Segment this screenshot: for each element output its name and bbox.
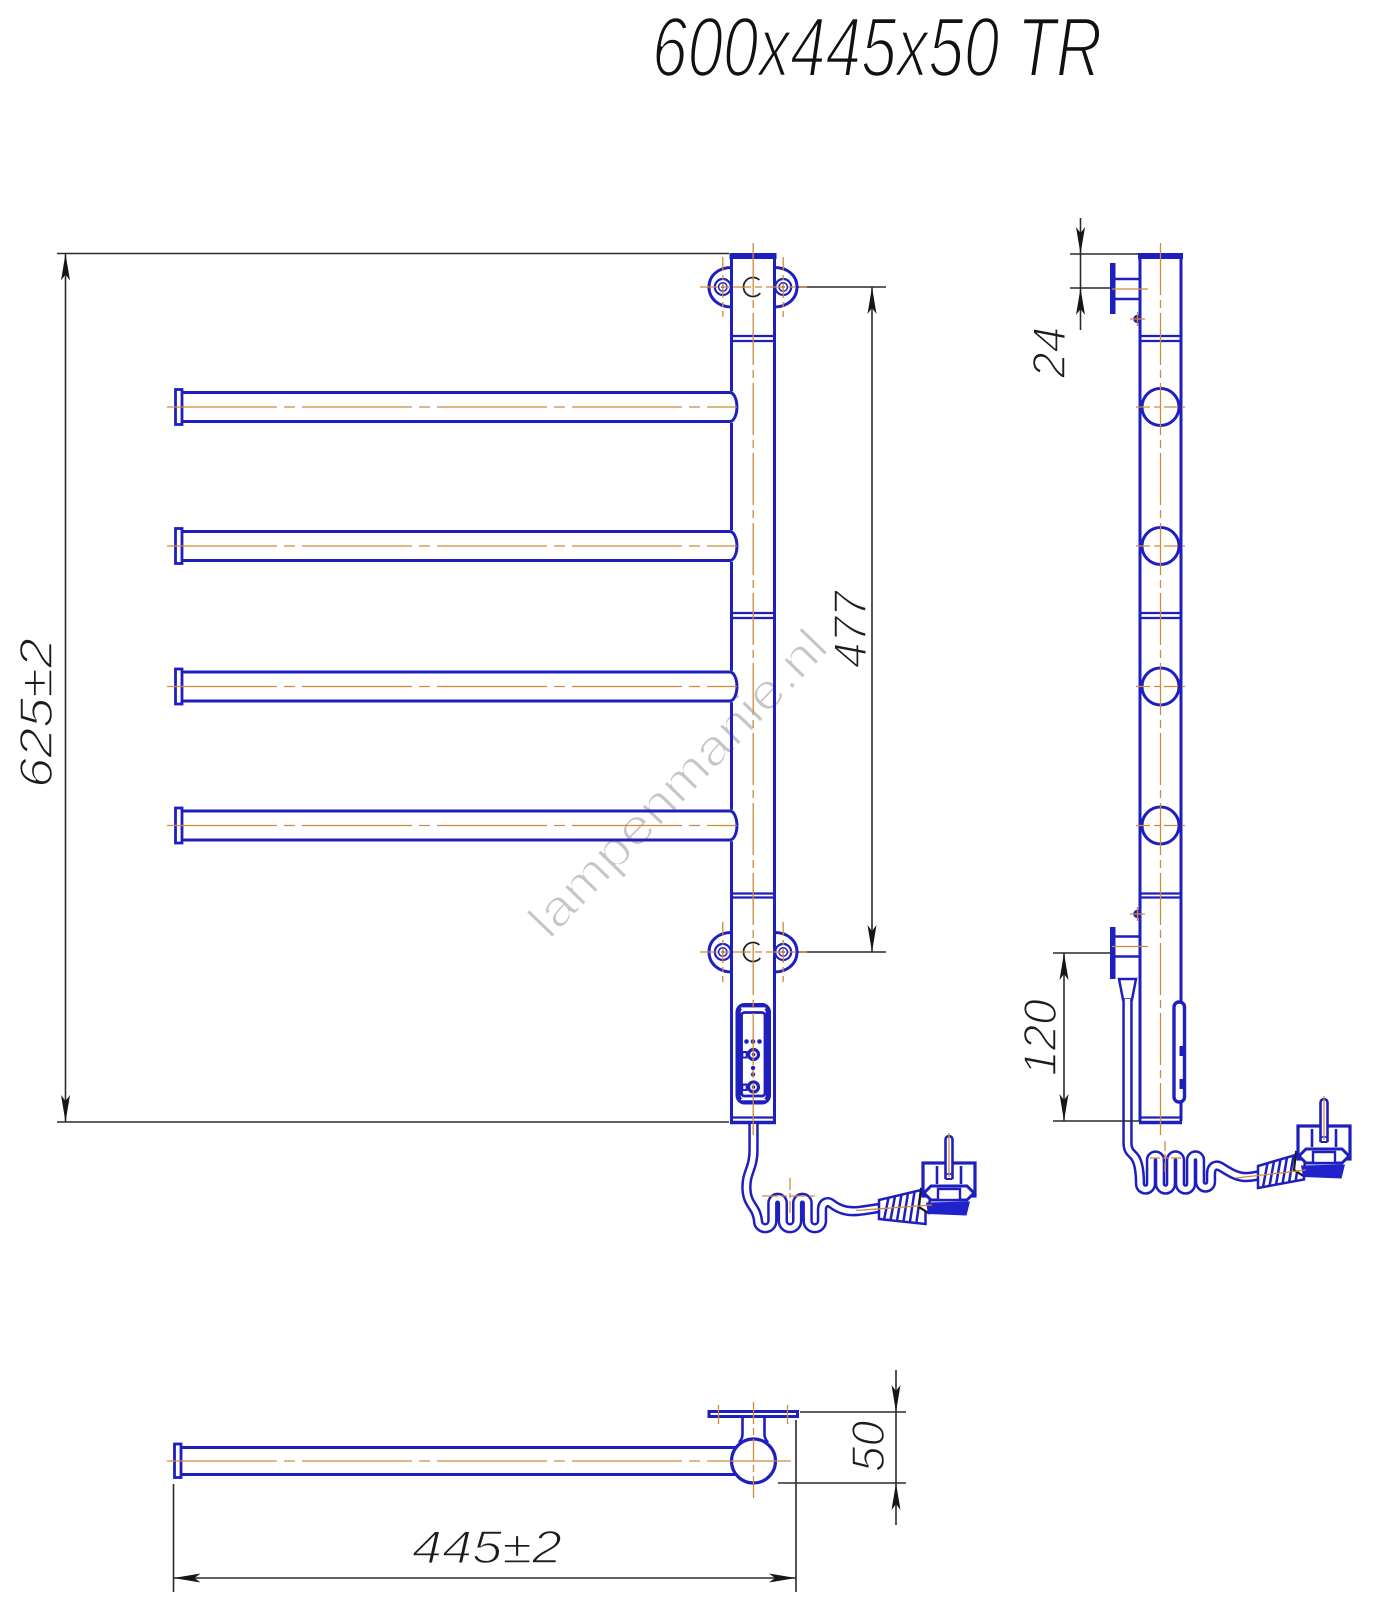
svg-text:600x445x50 TR: 600x445x50 TR (652, 0, 1102, 94)
svg-text:625±2: 625±2 (10, 638, 62, 788)
svg-text:445±2: 445±2 (412, 1521, 562, 1573)
svg-text:120: 120 (1014, 999, 1066, 1076)
svg-text:50: 50 (842, 1420, 894, 1472)
svg-text:24: 24 (1023, 327, 1075, 379)
svg-text:477: 477 (824, 590, 876, 668)
svg-text:lampenmanie.nl: lampenmanie.nl (517, 618, 839, 948)
